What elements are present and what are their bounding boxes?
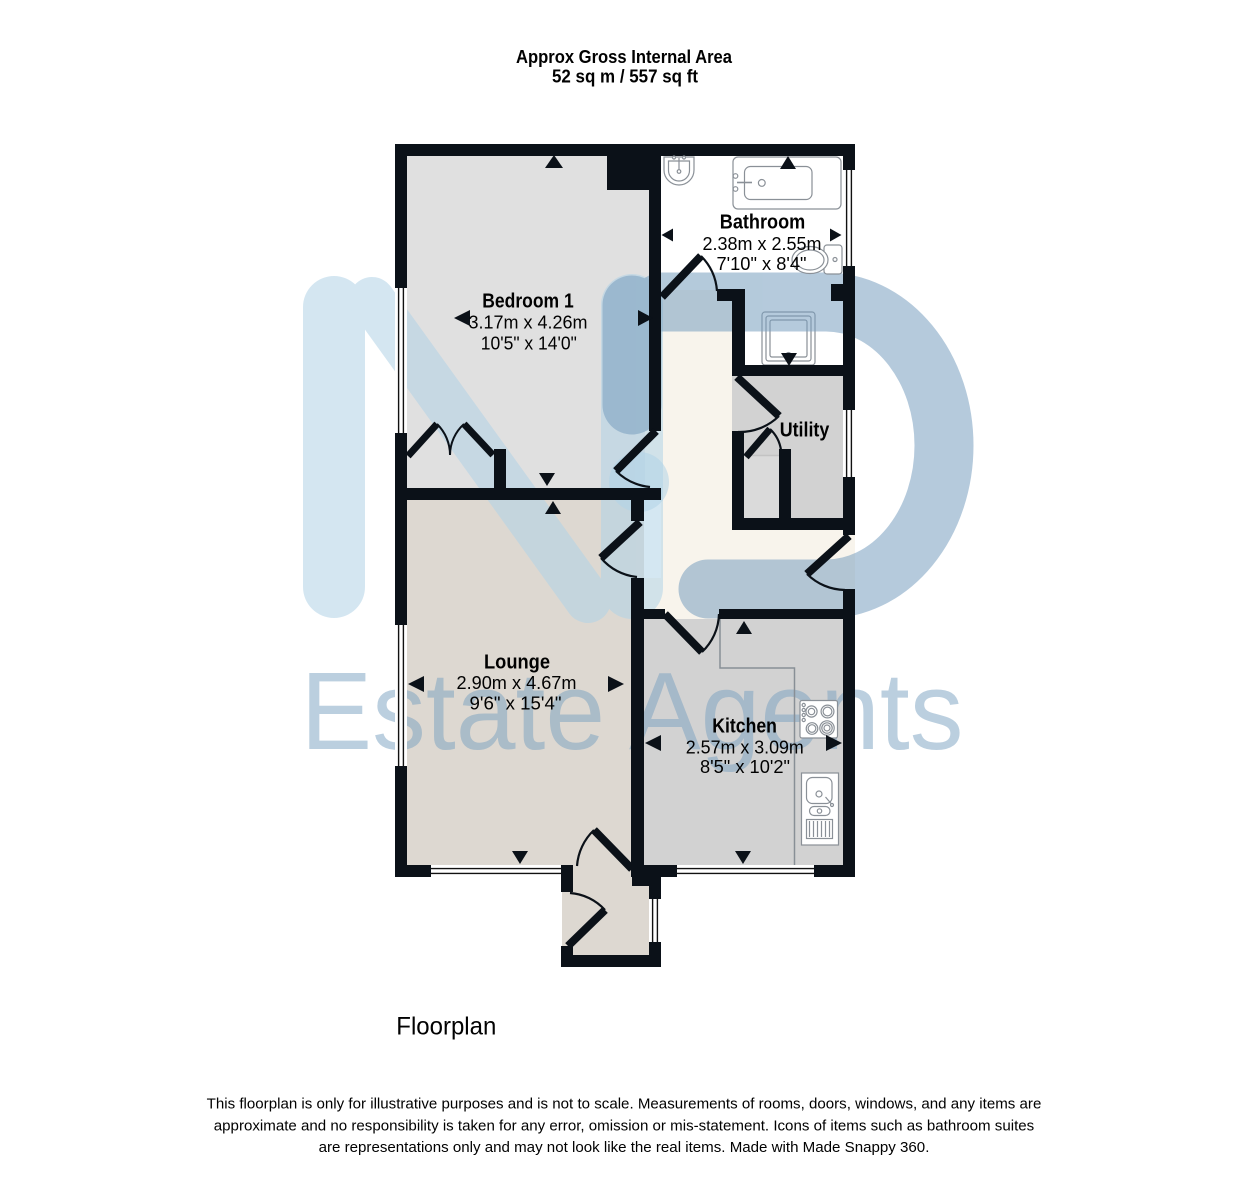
svg-text:are representations only and m: are representations only and may not loo… <box>319 1139 930 1156</box>
svg-text:3.17m x 4.26m: 3.17m x 4.26m <box>469 312 588 333</box>
svg-text:2.57m x 3.09m: 2.57m x 3.09m <box>686 736 804 757</box>
svg-text:Approx Gross Internal Area: Approx Gross Internal Area <box>516 47 733 67</box>
svg-text:This floorplan is only for ill: This floorplan is only for illustrative … <box>207 1096 1042 1113</box>
svg-text:2.38m x 2.55m: 2.38m x 2.55m <box>703 233 822 254</box>
svg-text:Bathroom: Bathroom <box>720 210 806 233</box>
svg-text:Bedroom 1: Bedroom 1 <box>482 290 574 313</box>
svg-text:Lounge: Lounge <box>484 651 550 674</box>
svg-text:7'10" x 8'4": 7'10" x 8'4" <box>717 253 807 274</box>
svg-text:Utility: Utility <box>780 419 830 442</box>
svg-text:Floorplan: Floorplan <box>396 1013 496 1041</box>
svg-text:8'5" x 10'2": 8'5" x 10'2" <box>700 756 790 777</box>
svg-text:Kitchen: Kitchen <box>712 714 777 737</box>
svg-text:52 sq m / 557 sq ft: 52 sq m / 557 sq ft <box>552 66 698 86</box>
svg-text:9'6" x 15'4": 9'6" x 15'4" <box>470 693 562 714</box>
svg-text:approximate and no responsibil: approximate and no responsibility is tak… <box>214 1117 1034 1134</box>
svg-text:10'5" x 14'0": 10'5" x 14'0" <box>481 333 577 354</box>
svg-text:2.90m x 4.67m: 2.90m x 4.67m <box>457 672 577 693</box>
